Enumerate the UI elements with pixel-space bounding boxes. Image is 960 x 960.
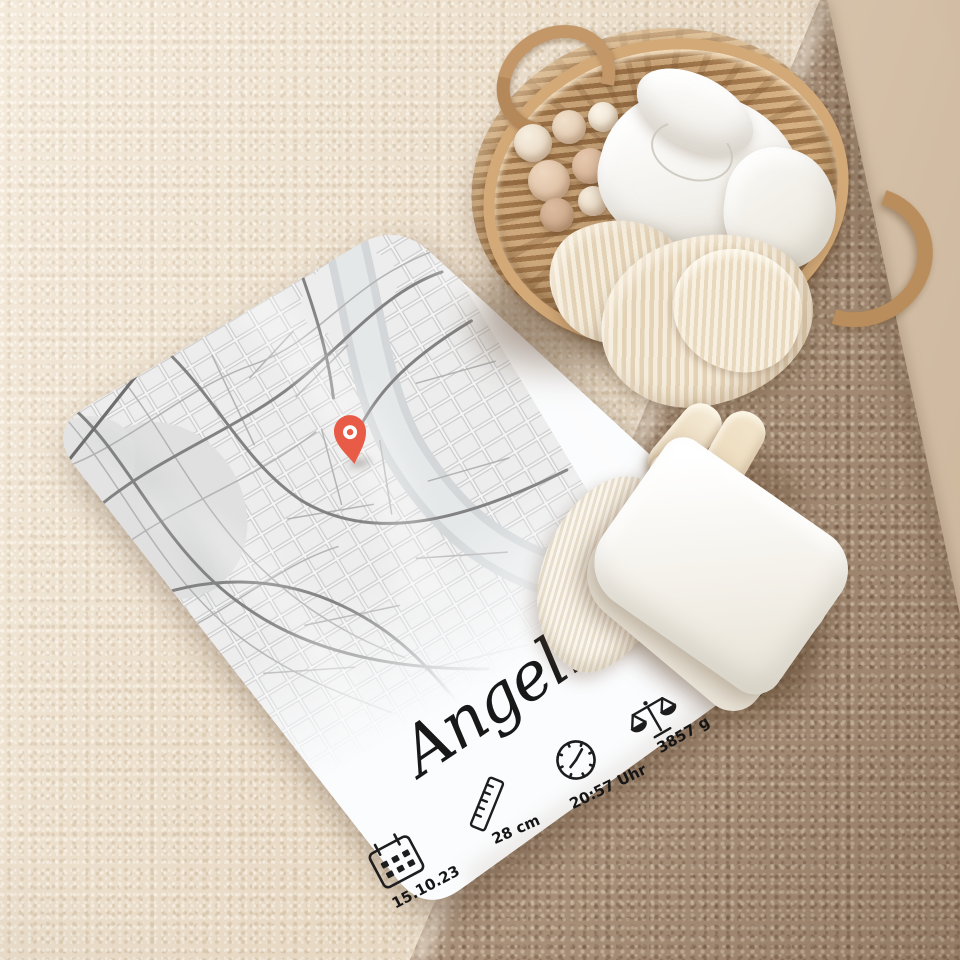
felt-ball <box>514 124 552 162</box>
felt-ball <box>552 110 586 144</box>
felt-ball <box>528 160 570 202</box>
product-photo-scene: Angelina 15.10.23 28 cm <box>0 0 960 960</box>
felt-ball <box>540 198 574 232</box>
